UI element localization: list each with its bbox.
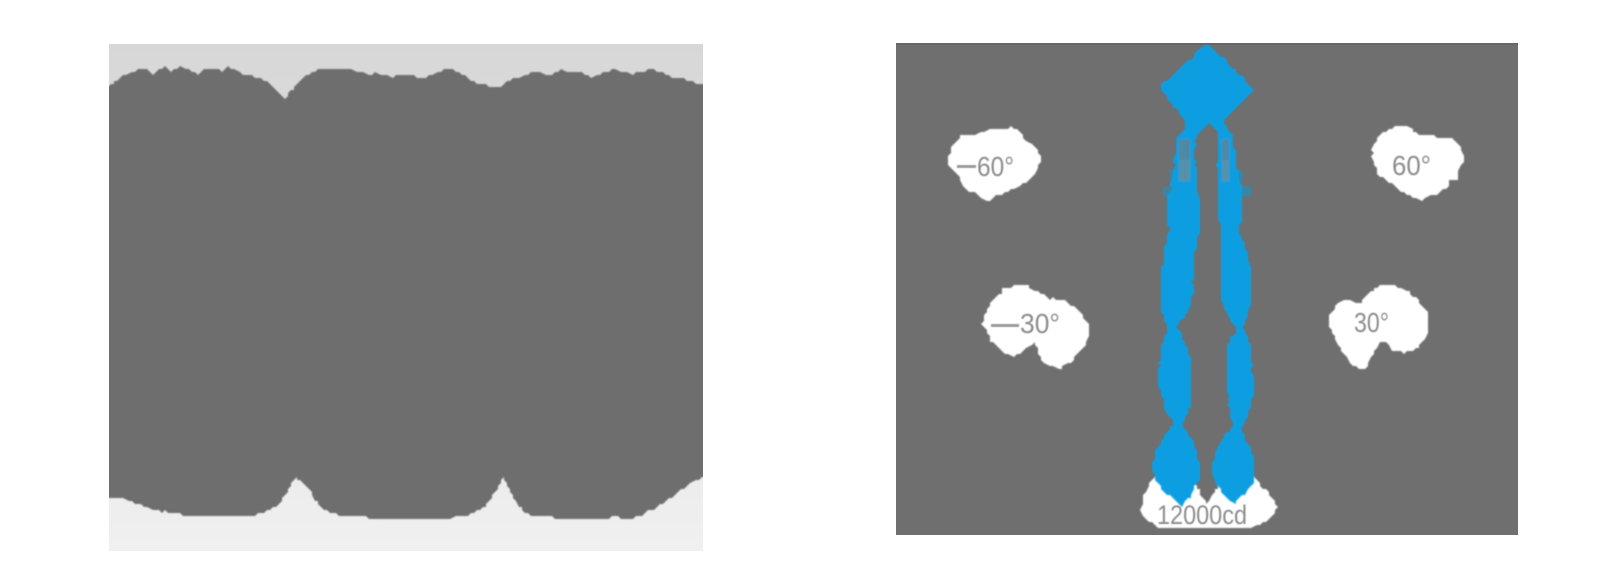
svg-text:60°: 60° (977, 151, 1014, 182)
svg-text:60°: 60° (1392, 150, 1431, 181)
svg-text:12000cd: 12000cd (1157, 500, 1247, 530)
svg-text:30°: 30° (1020, 308, 1060, 339)
svg-text:30°: 30° (1354, 307, 1389, 338)
